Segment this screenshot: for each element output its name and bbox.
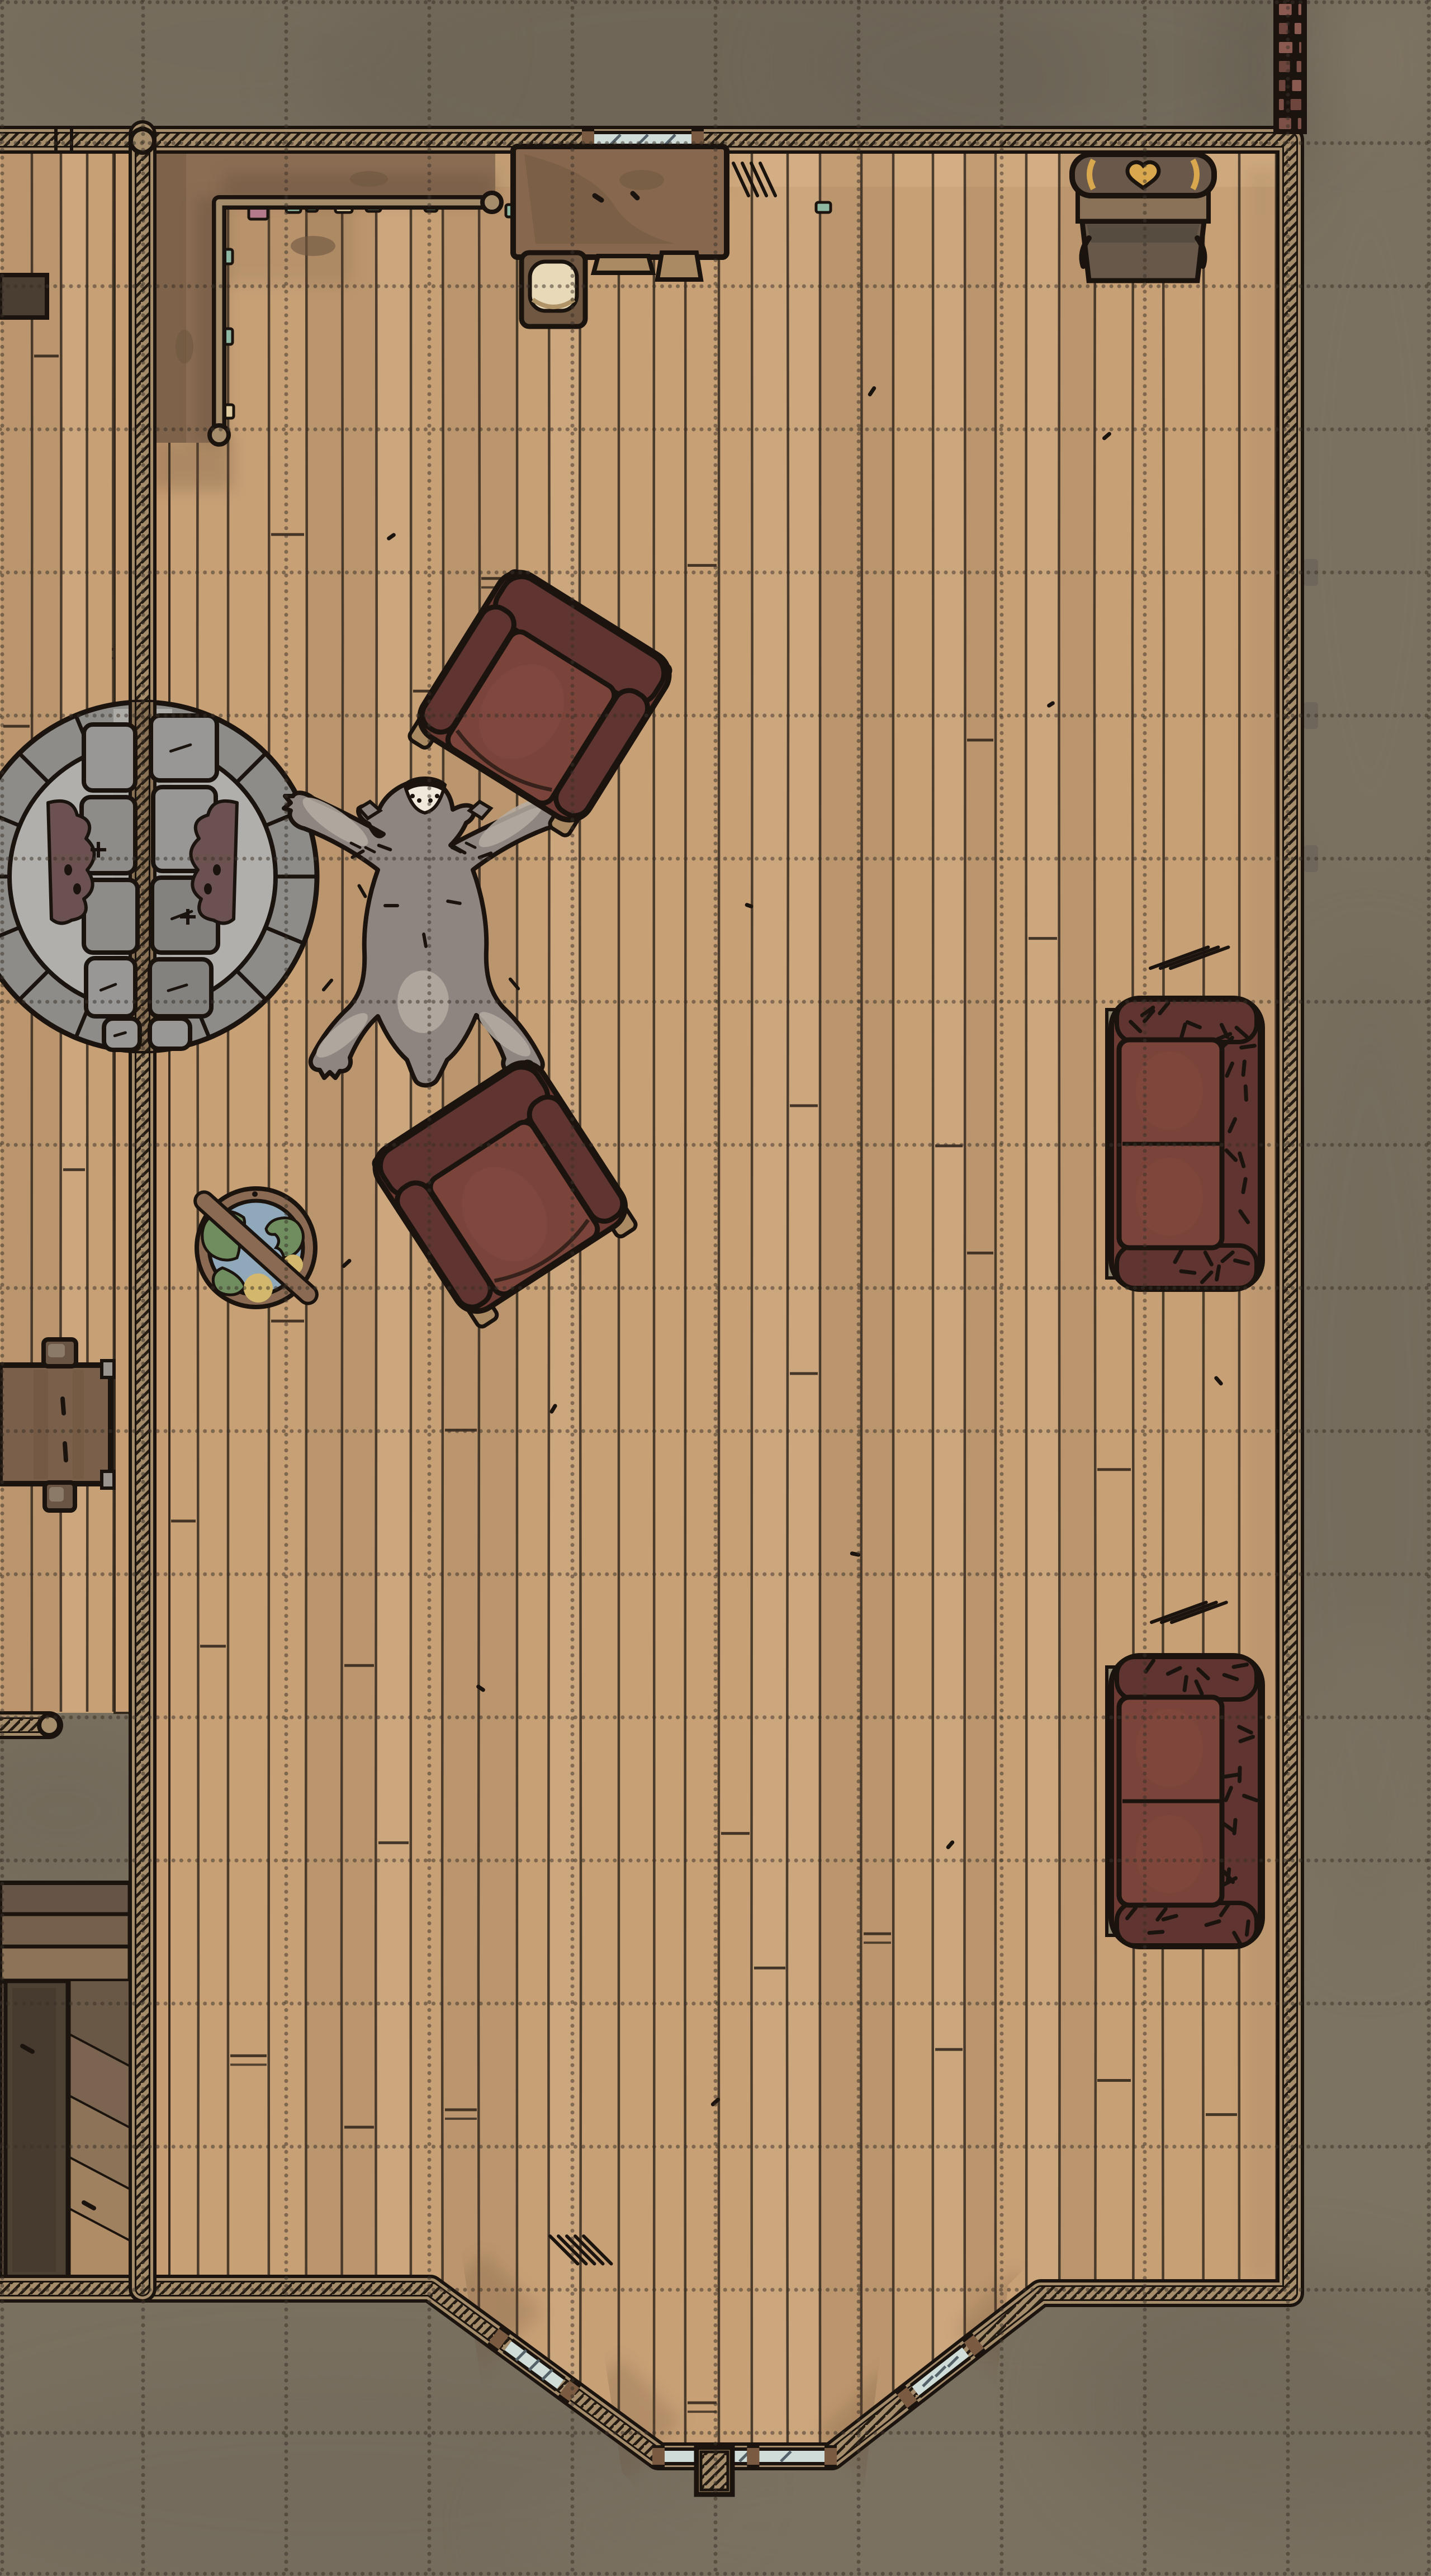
map-canvas[interactable] (0, 0, 1431, 2576)
brick-chimney (1273, 0, 1307, 134)
ember-bed (191, 801, 237, 924)
stair-tread (0, 1947, 130, 1981)
side-table (0, 1339, 114, 1510)
wall-shelf (0, 275, 47, 318)
stool (44, 1339, 76, 1366)
stair-tread (0, 1883, 130, 1914)
battle-map-svg (0, 0, 1431, 2576)
left-wall-shelf (0, 275, 47, 318)
ember-bed (48, 801, 94, 924)
couch-2 (1107, 1656, 1262, 1947)
tucked-stool (657, 253, 701, 280)
tucked-stool (594, 256, 653, 273)
floors (0, 152, 1279, 2516)
floor-globe (197, 1188, 315, 1307)
stair-tread (0, 1914, 130, 1947)
stool (45, 1483, 75, 1510)
stone-fireplace (0, 702, 317, 1051)
hearth-stone (150, 1019, 190, 1049)
stairwell (0, 1883, 134, 2280)
chair-with-cushion (522, 253, 585, 326)
hearth-stone (84, 724, 135, 790)
wall-cap (482, 193, 501, 212)
